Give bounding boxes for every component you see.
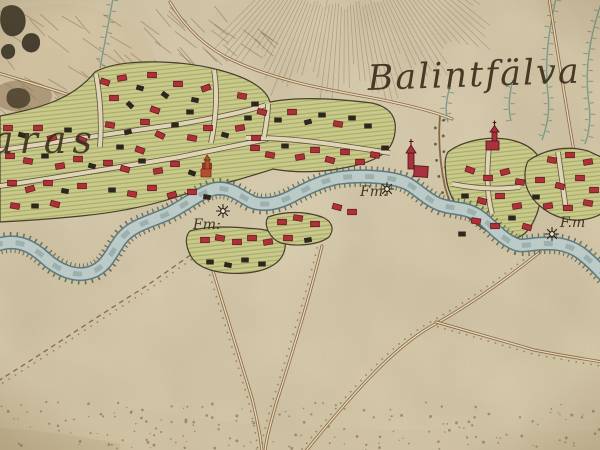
map-image: Fm: Fm. F.m Balintfälva aras [0, 0, 600, 450]
vignette [0, 0, 600, 450]
map-canvas[interactable]: Fm: Fm. F.m Balintfälva aras [0, 0, 600, 450]
